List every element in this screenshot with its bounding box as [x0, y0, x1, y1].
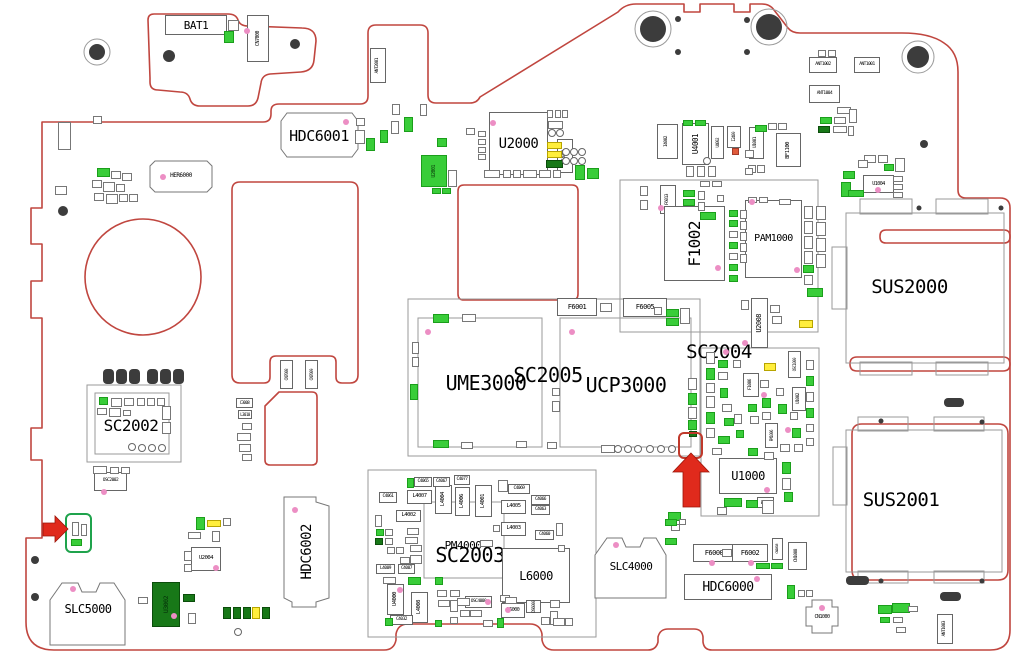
via-dot [879, 419, 884, 424]
fiducial-dot [343, 119, 349, 125]
annotation-arrow-up [673, 453, 709, 507]
fiducial-dot [754, 576, 760, 582]
via-dot [879, 579, 884, 584]
fiducial-dot [244, 28, 250, 34]
test-point [647, 446, 654, 453]
fiducial-dot [658, 205, 664, 211]
via-dot [980, 420, 985, 425]
via-dot [163, 50, 175, 62]
test-point [635, 446, 642, 453]
test-point [625, 446, 632, 453]
test-point [563, 158, 570, 165]
fiducial-dot [425, 329, 431, 335]
fiducial-dot [70, 586, 76, 592]
test-point [563, 149, 570, 156]
via-dot [980, 579, 985, 584]
mounting-hole [640, 16, 666, 42]
fiducial-dot [748, 560, 754, 566]
fiducial-dot [742, 340, 748, 346]
test-point [571, 158, 578, 165]
fiducial-dot [490, 120, 496, 126]
fiducial-dot [171, 613, 177, 619]
via-dot [744, 17, 750, 23]
test-point [704, 158, 711, 165]
via-dot [999, 206, 1004, 211]
mounting-hole [89, 44, 105, 60]
test-point [149, 445, 156, 452]
fiducial-dot [709, 560, 715, 566]
connector-pad [944, 398, 964, 407]
via-dot [675, 16, 681, 22]
test-point [571, 149, 578, 156]
test-point [159, 445, 166, 452]
annotation-arrow-right [43, 516, 68, 542]
annotations-layer [0, 0, 1024, 662]
connector-pad [173, 369, 184, 384]
via-dot [31, 593, 39, 601]
fiducial-dot [569, 329, 575, 335]
connector-pad [846, 576, 869, 585]
fiducial-dot [749, 199, 755, 205]
connector-pad [116, 369, 127, 384]
via-dot [675, 49, 681, 55]
test-point [129, 444, 136, 451]
test-point [579, 158, 586, 165]
fiducial-dot [723, 349, 729, 355]
fiducial-dot [613, 542, 619, 548]
test-point [579, 149, 586, 156]
connector-pad [103, 369, 114, 384]
fiducial-dot [160, 174, 166, 180]
via-dot [744, 49, 750, 55]
fiducial-dot [794, 267, 800, 273]
test-point [615, 446, 622, 453]
test-point [549, 130, 556, 137]
fiducial-dot [292, 507, 298, 513]
fiducial-dot [785, 427, 791, 433]
via-dot [290, 39, 300, 49]
fiducial-dot [397, 587, 403, 593]
fiducial-dot [761, 392, 767, 398]
test-point [658, 446, 665, 453]
test-point [669, 446, 676, 453]
connector-pad [940, 592, 961, 601]
connector-pad [147, 369, 158, 384]
mounting-hole [907, 46, 929, 68]
via-dot [31, 556, 39, 564]
fiducial-dot [213, 565, 219, 571]
via-dot [58, 206, 68, 216]
test-point [235, 629, 242, 636]
connector-pad [129, 369, 140, 384]
fiducial-dot [485, 599, 491, 605]
via-dot [920, 140, 928, 148]
connector-pad [160, 369, 171, 384]
test-point [557, 130, 564, 137]
fiducial-dot [875, 187, 881, 193]
fiducial-dot [715, 265, 721, 271]
fiducial-dot [764, 487, 770, 493]
test-point [139, 445, 146, 452]
via-dot [917, 206, 922, 211]
fiducial-dot [505, 607, 511, 613]
fiducial-dot [819, 605, 825, 611]
pcb-board-diagram: BAT1CN7000ANT2001HDC6001HER6000U2000I400… [0, 0, 1024, 662]
fiducial-dot [101, 489, 107, 495]
mounting-hole [756, 14, 782, 40]
